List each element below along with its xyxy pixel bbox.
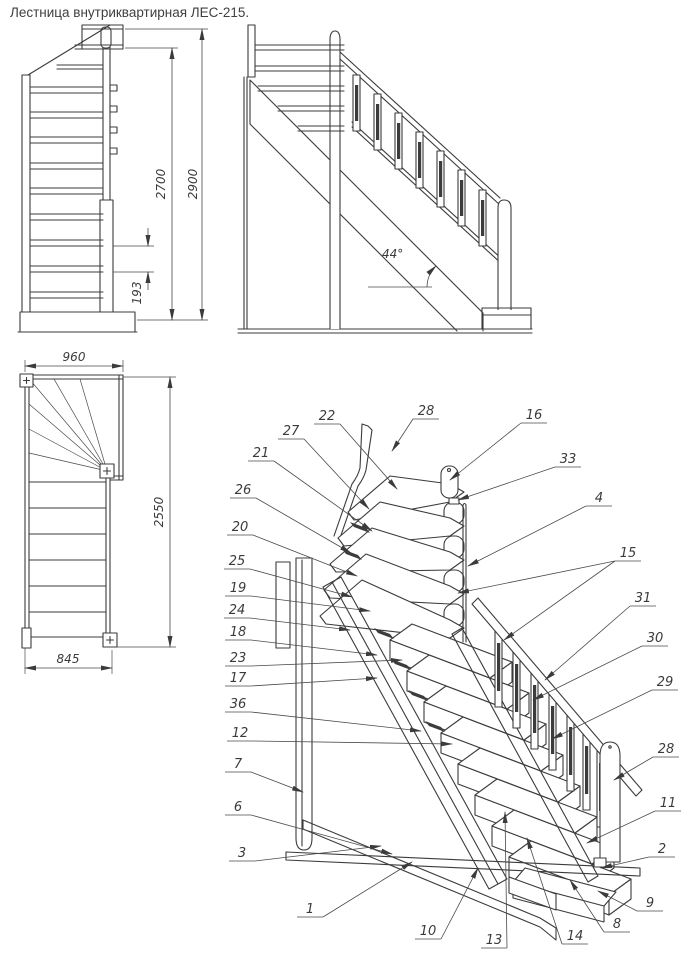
svg-text:31: 31	[635, 591, 652, 606]
plan-steps	[29, 482, 106, 637]
svg-text:24: 24	[229, 603, 246, 618]
iso-bracket	[594, 858, 606, 867]
dim-845: 845	[57, 652, 80, 666]
svg-text:1: 1	[306, 902, 314, 917]
callout-1: 1	[297, 862, 412, 917]
svg-text:33: 33	[560, 452, 577, 467]
dim-960: 960	[63, 350, 86, 364]
callout-28: 28	[392, 404, 439, 451]
svg-text:8: 8	[613, 917, 621, 932]
callout-7: 7	[225, 757, 303, 792]
callout-23: 23	[225, 651, 402, 666]
dim-2700: 2700	[154, 168, 168, 199]
side-wall-edge	[244, 77, 247, 329]
dim-angle: 44°	[382, 247, 403, 261]
front-steps	[30, 87, 103, 298]
svg-text:21: 21	[253, 446, 270, 461]
svg-text:30: 30	[647, 631, 664, 646]
front-landing	[75, 25, 123, 49]
front-left-post	[22, 75, 30, 312]
svg-text:26: 26	[235, 483, 252, 498]
callout-22: 22	[314, 409, 397, 489]
front-center-post-upper	[103, 47, 110, 200]
svg-text:28: 28	[418, 404, 435, 419]
front-dimensions: 2700 2900 193	[113, 29, 208, 320]
front-baluster-stubs	[110, 85, 117, 154]
svg-text:13: 13	[486, 933, 503, 948]
svg-text:19: 19	[230, 581, 247, 596]
iso-connector	[449, 498, 459, 504]
side-floor	[238, 329, 532, 333]
iso-newel-cap	[441, 466, 458, 498]
svg-text:22: 22	[319, 409, 336, 424]
iso-side-panel	[276, 562, 290, 648]
svg-text:23: 23	[230, 651, 247, 666]
dim-193: 193	[130, 282, 144, 305]
side-base-block	[482, 308, 531, 329]
drawing-sheet: Лестница внутриквартирная ЛЕС-215.	[0, 0, 695, 970]
front-rail-diagonal	[28, 25, 110, 75]
svg-text:17: 17	[230, 671, 247, 686]
svg-text:11: 11	[660, 796, 677, 811]
callout-28: 28	[614, 742, 679, 780]
svg-text:9: 9	[646, 896, 654, 911]
svg-text:15: 15	[620, 546, 637, 561]
svg-text:16: 16	[526, 408, 543, 423]
front-view: 2700 2900 193	[18, 25, 208, 332]
plan-post-symbols	[20, 374, 117, 647]
side-center-post	[330, 31, 340, 329]
svg-text:7: 7	[234, 757, 243, 772]
dim-2900: 2900	[186, 168, 200, 199]
side-balusters	[353, 75, 486, 246]
svg-text:14: 14	[567, 929, 584, 944]
front-winder-edge	[57, 65, 103, 69]
drawing-views: 2700 2900 193	[0, 0, 695, 970]
svg-text:27: 27	[283, 424, 300, 439]
callout-30: 30	[533, 631, 668, 700]
plan-dimensions: 960 2550 845	[25, 350, 176, 674]
front-center-post-lower	[100, 200, 113, 312]
svg-text:18: 18	[230, 625, 247, 640]
plan-winder-fan	[29, 379, 107, 471]
callout-36: 36	[225, 697, 421, 731]
front-plinth	[20, 312, 135, 332]
svg-text:36: 36	[230, 697, 247, 712]
svg-text:20: 20	[232, 520, 249, 535]
plan-left-foot	[22, 628, 31, 648]
plan-view: 960 2550 845	[20, 350, 176, 674]
side-view: 44°	[238, 25, 532, 333]
svg-text:3: 3	[238, 846, 246, 861]
svg-text:12: 12	[232, 726, 249, 741]
dim-2550: 2550	[152, 496, 166, 527]
side-left-post	[248, 25, 255, 77]
iso-center-rod	[463, 504, 466, 643]
svg-text:25: 25	[229, 554, 246, 569]
svg-text:2: 2	[658, 842, 666, 857]
svg-text:10: 10	[420, 924, 437, 939]
svg-text:6: 6	[234, 800, 242, 815]
svg-text:29: 29	[657, 675, 674, 690]
iso-winder-treads	[320, 476, 464, 638]
side-angle-annotation: 44°	[368, 247, 436, 287]
callout-16: 16	[450, 408, 547, 480]
side-end-post	[498, 200, 511, 310]
svg-text:4: 4	[595, 491, 603, 506]
iso-view: 2227212620251924182317361276311013148921…	[224, 404, 681, 948]
callout-4: 4	[468, 491, 612, 566]
callout-12: 12	[227, 726, 452, 744]
svg-text:28: 28	[658, 742, 675, 757]
iso-lower-post	[600, 742, 620, 862]
side-stringer	[250, 80, 483, 331]
callout-15: 15	[458, 546, 641, 640]
callout-26: 26	[230, 483, 351, 553]
